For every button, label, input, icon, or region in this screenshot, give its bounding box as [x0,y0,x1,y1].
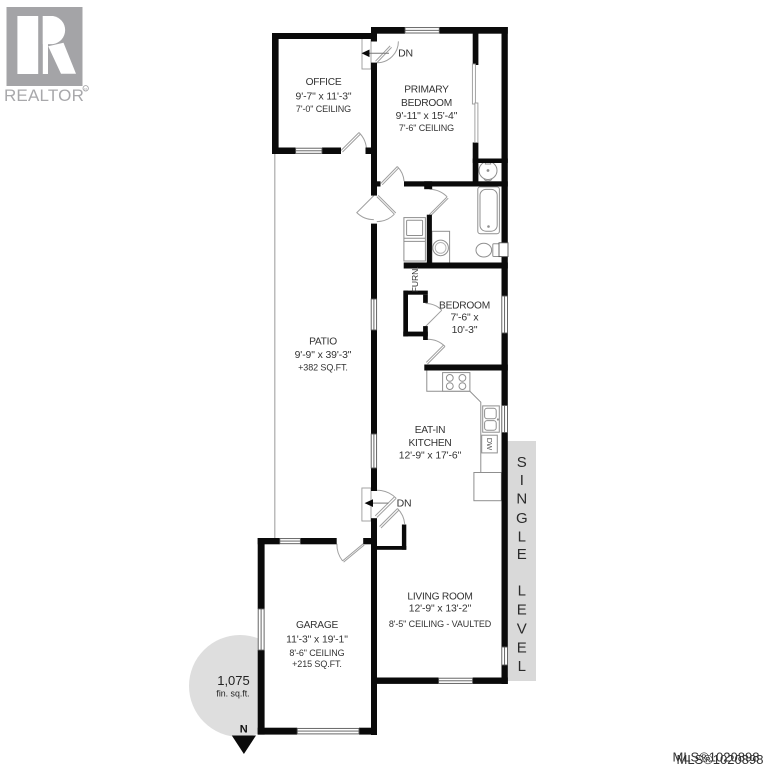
svg-text:+382 SQ.FT.: +382 SQ.FT. [298,362,348,372]
svg-text:MLS®1020898: MLS®1020898 [673,750,760,765]
svg-text:I: I [520,472,524,489]
svg-text:1,075: 1,075 [217,673,250,688]
svg-text:7'-6" x: 7'-6" x [450,312,479,323]
svg-text:BEDROOM: BEDROOM [439,300,490,311]
svg-text:12'-9" x 17'-6": 12'-9" x 17'-6" [399,451,462,462]
svg-text:L: L [518,658,526,675]
svg-text:L: L [518,583,526,600]
svg-text:DN: DN [398,48,413,60]
svg-text:8'-5" CEILING - VAULTED: 8'-5" CEILING - VAULTED [389,619,492,629]
svg-text:DN: DN [397,497,412,509]
svg-text:KITCHEN: KITCHEN [409,438,452,449]
svg-text:7'-6" CEILING: 7'-6" CEILING [399,123,454,133]
svg-text:8'-6" CEILING: 8'-6" CEILING [289,648,344,658]
svg-text:9'-11" x 15'-4": 9'-11" x 15'-4" [396,111,458,122]
svg-text:PRIMARY: PRIMARY [404,84,449,95]
svg-text:LIVING ROOM: LIVING ROOM [407,592,472,603]
svg-text:N: N [516,491,527,508]
svg-text:9'-9" x 39'-3": 9'-9" x 39'-3" [295,350,352,361]
svg-text:10'-3": 10'-3" [452,325,478,336]
svg-text:L: L [518,529,526,546]
svg-text:OFFICE: OFFICE [306,77,342,88]
svg-text:EAT-IN: EAT-IN [415,425,446,436]
svg-text:E: E [517,546,527,563]
svg-text:N: N [240,724,248,736]
svg-text:DW: DW [485,438,494,451]
svg-text:G: G [516,510,528,527]
svg-text:PATIO: PATIO [309,337,337,348]
svg-text:9'-7" x 11'-3": 9'-7" x 11'-3" [296,91,352,102]
svg-text:R: R [84,86,87,91]
svg-text:E: E [517,602,527,619]
svg-text:fin. sq.ft.: fin. sq.ft. [216,689,249,699]
svg-text:11'-3" x 19'-1": 11'-3" x 19'-1" [286,634,348,645]
svg-text:7'-0" CEILING: 7'-0" CEILING [296,104,351,114]
svg-text:REALTOR: REALTOR [4,86,84,105]
svg-text:S: S [517,454,527,471]
svg-text:FURN.: FURN. [410,266,420,292]
svg-text:12'-9" x 13'-2": 12'-9" x 13'-2" [409,603,472,614]
svg-text:GARAGE: GARAGE [296,620,339,631]
svg-text:E: E [517,640,527,657]
svg-text:BEDROOM: BEDROOM [401,98,452,109]
svg-text:+215 SQ.FT.: +215 SQ.FT. [292,659,342,669]
svg-text:V: V [517,621,527,638]
